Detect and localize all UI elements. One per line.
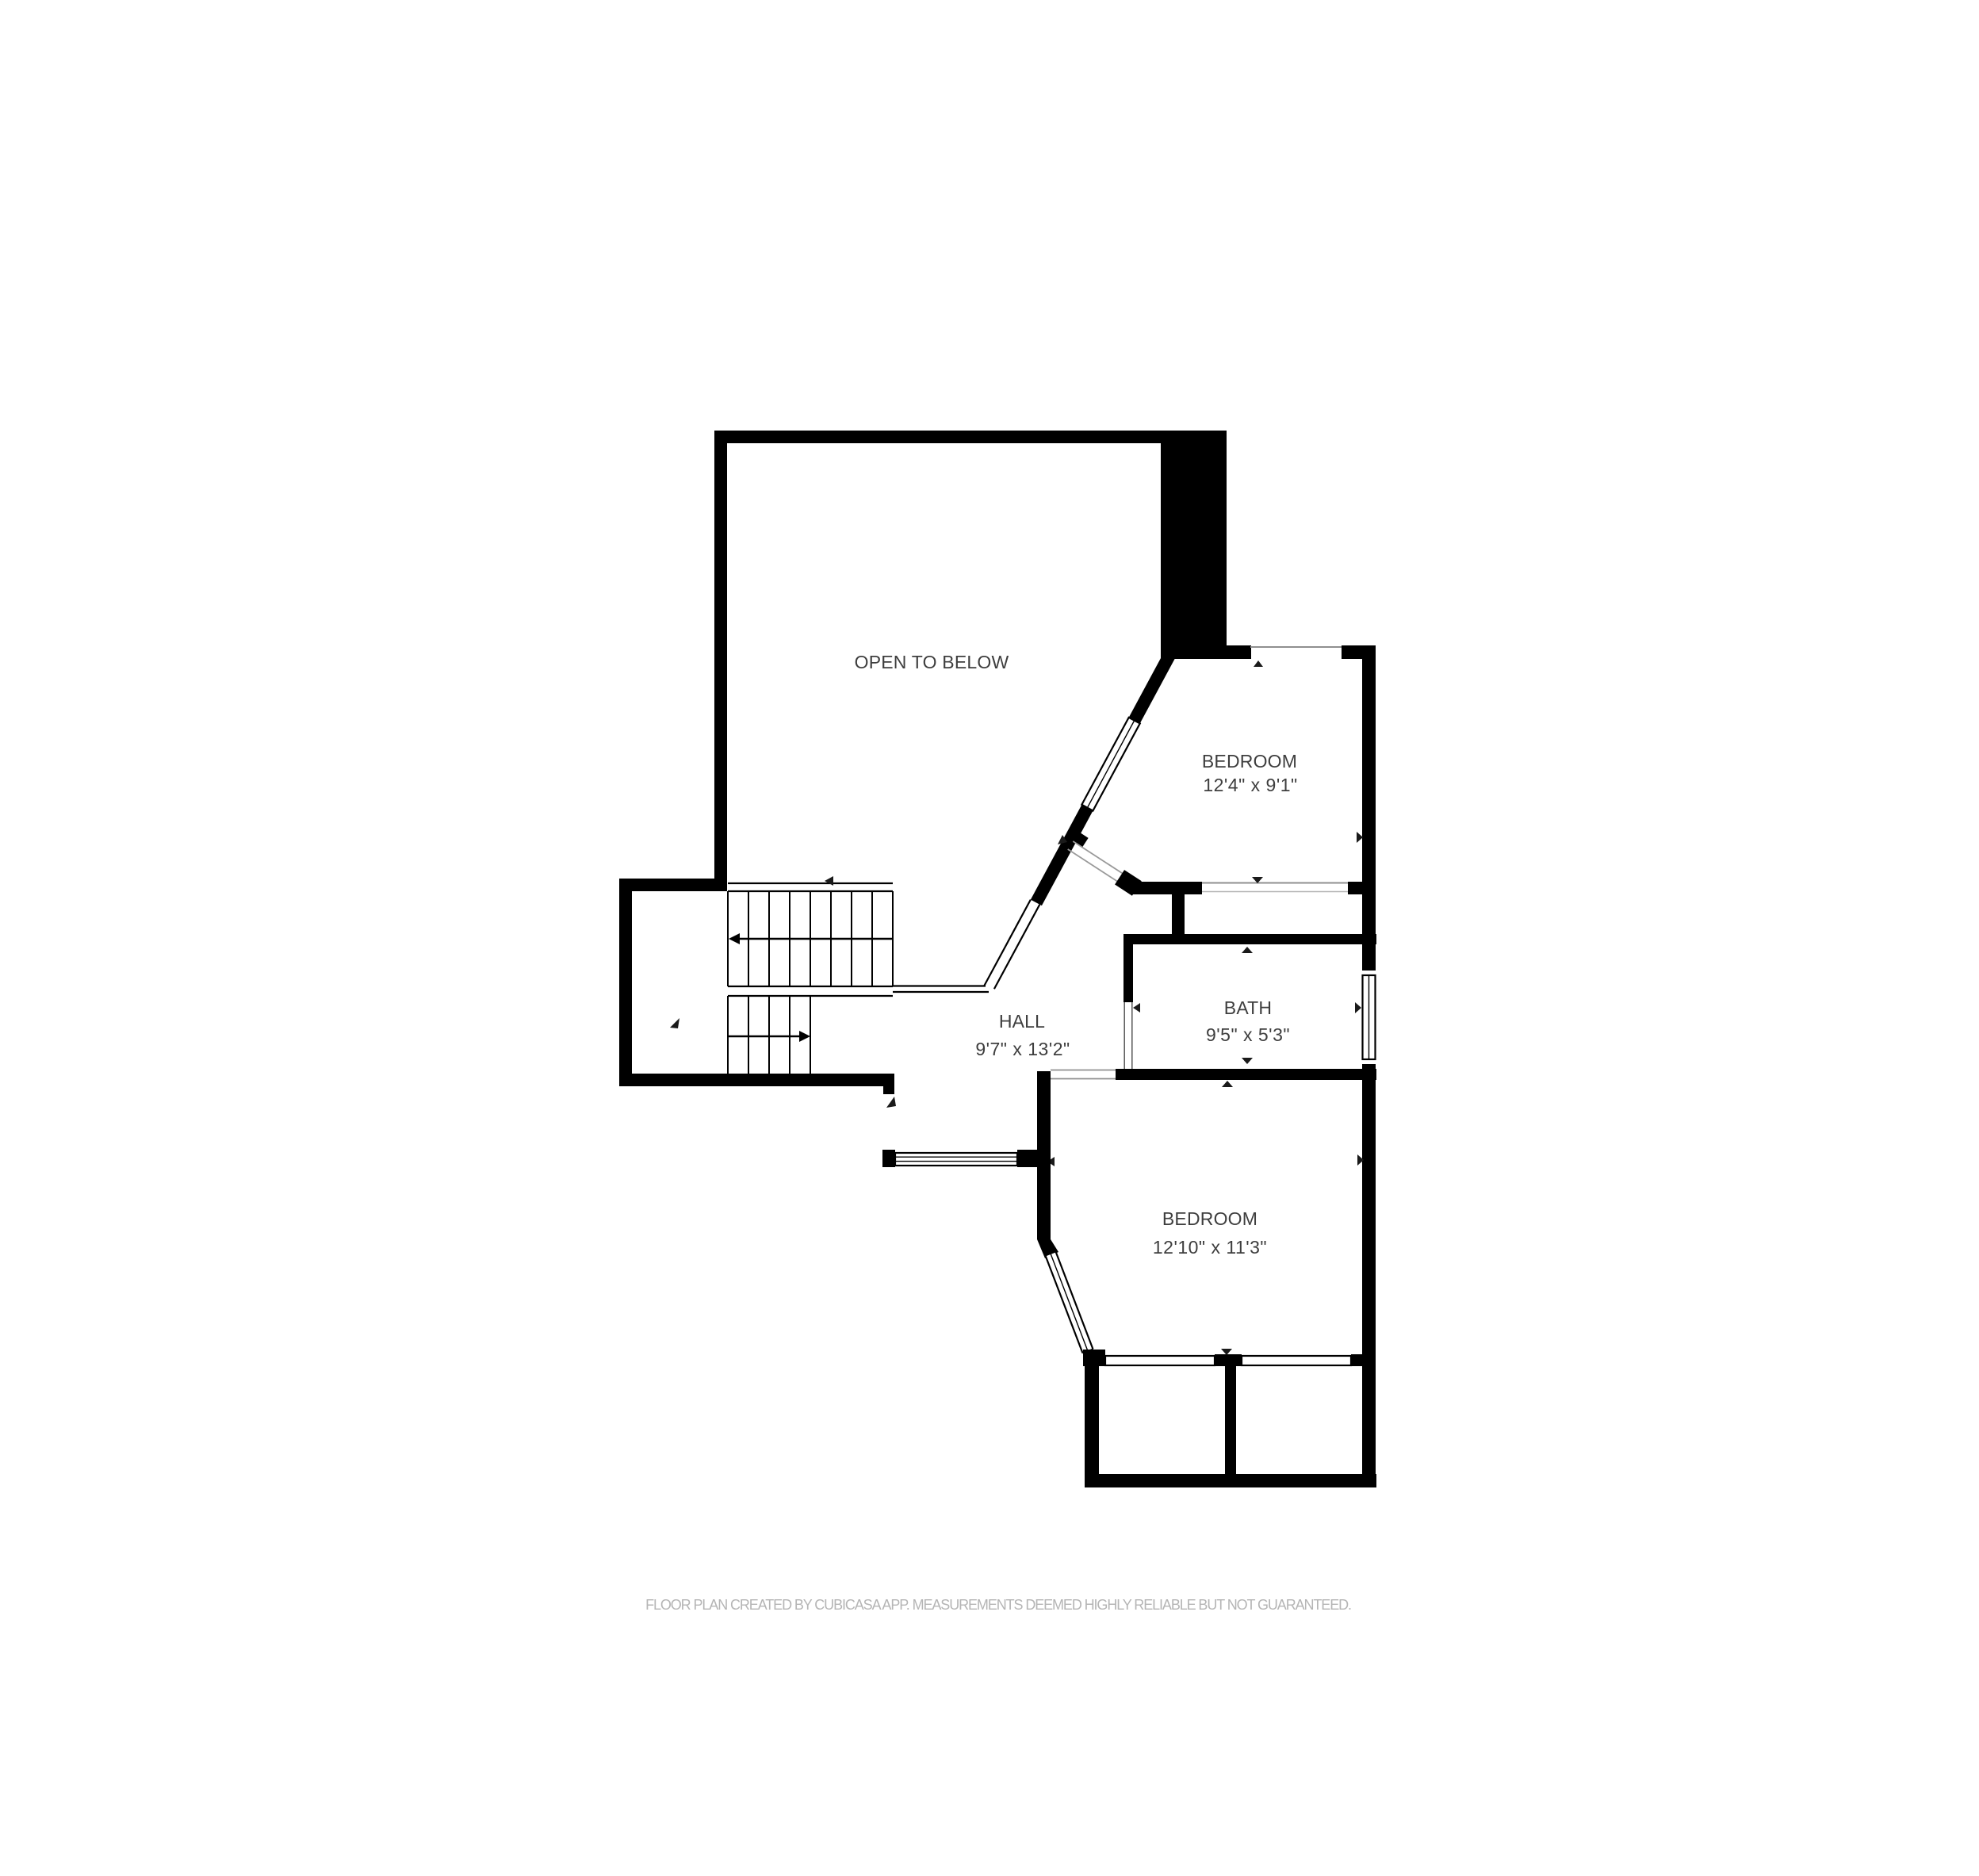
svg-text:FLOOR PLAN CREATED BY CUBICASA: FLOOR PLAN CREATED BY CUBICASA APP. MEAS… [645, 1597, 1351, 1613]
svg-text:9'5" x 5'3": 9'5" x 5'3" [1206, 1024, 1290, 1045]
svg-text:OPEN TO BELOW: OPEN TO BELOW [855, 652, 1009, 672]
svg-text:9'7" x 13'2": 9'7" x 13'2" [975, 1039, 1070, 1059]
svg-text:12'10" x 11'3": 12'10" x 11'3" [1153, 1237, 1267, 1258]
svg-text:HALL: HALL [999, 1011, 1045, 1032]
svg-text:BEDROOM: BEDROOM [1162, 1208, 1257, 1229]
svg-text:BEDROOM: BEDROOM [1202, 751, 1297, 771]
svg-text:12'4" x 9'1": 12'4" x 9'1" [1203, 775, 1297, 795]
svg-text:BATH: BATH [1224, 997, 1272, 1018]
